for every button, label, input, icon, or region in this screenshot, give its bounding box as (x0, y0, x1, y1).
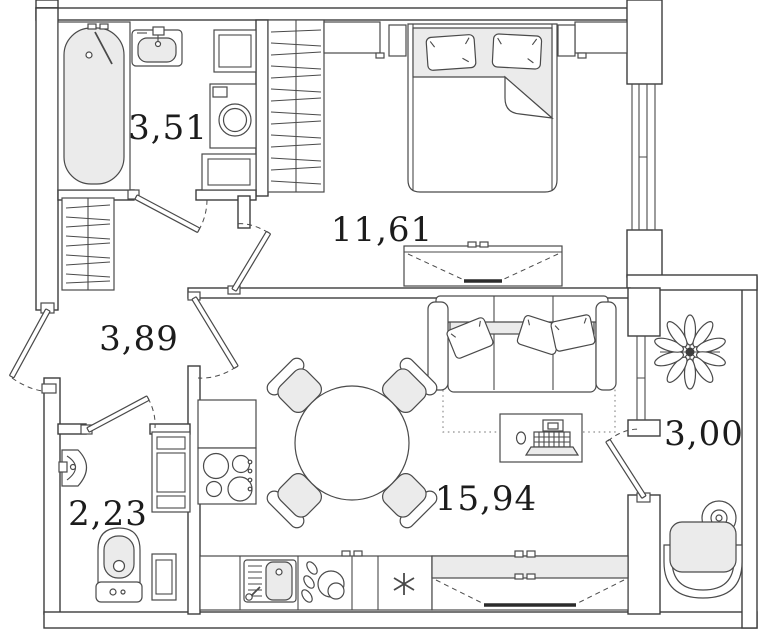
bedroom-door (228, 224, 271, 294)
bathroom-door (128, 190, 207, 233)
bathroom-shelf (214, 30, 256, 72)
room-label-kitchen-living: 15,94 (435, 479, 537, 519)
room-label-balcony: 3,00 (664, 414, 744, 454)
nightstand-right (558, 25, 575, 56)
hallway-closet (62, 198, 114, 290)
living-room-door (188, 292, 238, 378)
room-label-toilet: 2,23 (68, 494, 148, 534)
pillow (492, 34, 542, 69)
bedroom-shelf-right (575, 22, 627, 58)
plant (653, 315, 727, 389)
bathtub (58, 22, 130, 190)
floor-plan (0, 0, 758, 632)
floor-plan-canvas: 3,51 11,61 3,89 2,23 15,94 3,00 (0, 0, 758, 632)
toilet (96, 528, 142, 602)
corner-washbasin (59, 450, 87, 486)
stove-hob (198, 448, 256, 504)
balcony-window (637, 336, 645, 420)
double-bed (408, 24, 557, 192)
room-label-bathroom: 3,51 (128, 108, 208, 148)
living-tv-unit (432, 551, 628, 610)
washing-machine (210, 84, 256, 148)
bedroom-wardrobe (268, 20, 324, 192)
round-dining-table (264, 355, 439, 530)
armchair (664, 522, 742, 598)
kitchen-sink (244, 560, 296, 602)
desk-with-laptop (500, 414, 582, 462)
washbasin (132, 27, 182, 66)
room-label-hallway: 3,89 (99, 319, 179, 359)
sofa (428, 296, 616, 392)
low-shelf (152, 554, 176, 600)
balcony-door (606, 429, 650, 502)
room-label-bedroom: 11,61 (331, 210, 433, 250)
toilet-door (81, 396, 155, 434)
kitchen-tall-cabinet (198, 400, 256, 448)
bedroom-shelf-left (324, 22, 384, 58)
nightstand-left (389, 25, 406, 56)
bedroom-window (632, 84, 655, 230)
shelving-unit (152, 432, 190, 512)
towel-cabinet (202, 154, 256, 190)
pillow (426, 34, 476, 70)
